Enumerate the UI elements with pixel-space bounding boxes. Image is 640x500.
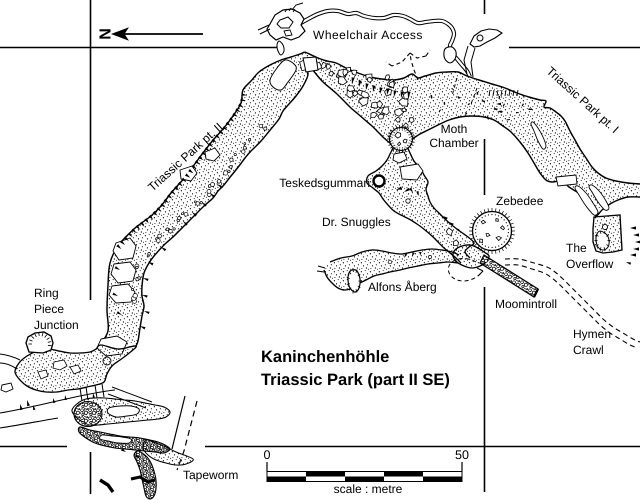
svg-text:Teskedsgumman: Teskedsgumman <box>279 176 370 190</box>
svg-text:Hymen: Hymen <box>573 327 611 341</box>
svg-text:Piece: Piece <box>34 302 64 316</box>
svg-text:scale : metre: scale : metre <box>334 482 403 496</box>
svg-text:Dr. Snuggles: Dr. Snuggles <box>322 215 391 229</box>
svg-text:The: The <box>566 241 587 255</box>
svg-text:50: 50 <box>455 448 469 462</box>
svg-text:Moomintroll: Moomintroll <box>495 297 557 311</box>
svg-text:Ring: Ring <box>34 286 59 300</box>
svg-text:0: 0 <box>264 448 271 462</box>
svg-text:Alfons Åberg: Alfons Åberg <box>368 280 437 294</box>
svg-text:Overflow: Overflow <box>566 257 614 271</box>
svg-text:Chamber: Chamber <box>429 136 478 150</box>
svg-text:Crawl: Crawl <box>573 343 604 357</box>
svg-text:Junction: Junction <box>34 318 79 332</box>
svg-text:N: N <box>98 28 115 40</box>
svg-text:Moth: Moth <box>441 122 468 136</box>
svg-text:Kaninchenhöhle: Kaninchenhöhle <box>261 348 389 366</box>
svg-text:Tapeworm: Tapeworm <box>183 468 238 482</box>
svg-text:Triassic Park (part II SE): Triassic Park (part II SE) <box>261 371 450 389</box>
svg-text:Wheelchair Access: Wheelchair Access <box>313 28 423 42</box>
svg-text:Zebedee: Zebedee <box>496 194 544 208</box>
